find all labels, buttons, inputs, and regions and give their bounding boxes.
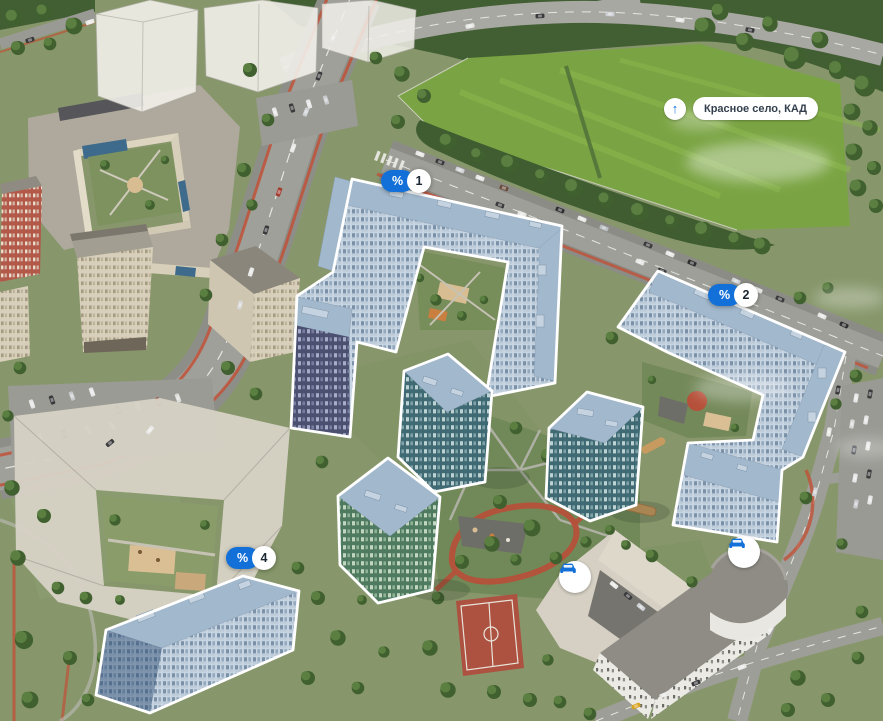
building-number-badge: 4 (252, 546, 276, 570)
arrow-up-icon[interactable]: ↑ (664, 98, 686, 120)
football-field (456, 594, 524, 676)
direction-label-pill[interactable]: Красное село, КАД (693, 97, 818, 120)
building-number-badge: 1 (407, 169, 431, 193)
existing-building-edge (0, 286, 30, 362)
existing-tower-beige (70, 224, 153, 353)
car-icon (559, 561, 577, 575)
direction-label[interactable]: ↑ Красное село, КАД (664, 97, 818, 120)
parking-poi[interactable] (728, 536, 760, 568)
discount-marker-building-1[interactable]: % 1 (381, 169, 431, 193)
discount-marker-building-4[interactable]: % 4 (226, 546, 276, 570)
parking-lot-east (836, 378, 883, 560)
building-number-badge: 2 (734, 283, 758, 307)
existing-building-red (0, 176, 42, 282)
direction-label-text: Красное село, КАД (704, 103, 807, 115)
parking-poi[interactable] (559, 561, 591, 593)
discount-marker-building-2[interactable]: % 2 (708, 283, 758, 307)
residential-masterplan-map[interactable]: ↑ Красное село, КАД % 1 % 2 % 4 (0, 0, 883, 721)
car-icon (728, 536, 746, 550)
